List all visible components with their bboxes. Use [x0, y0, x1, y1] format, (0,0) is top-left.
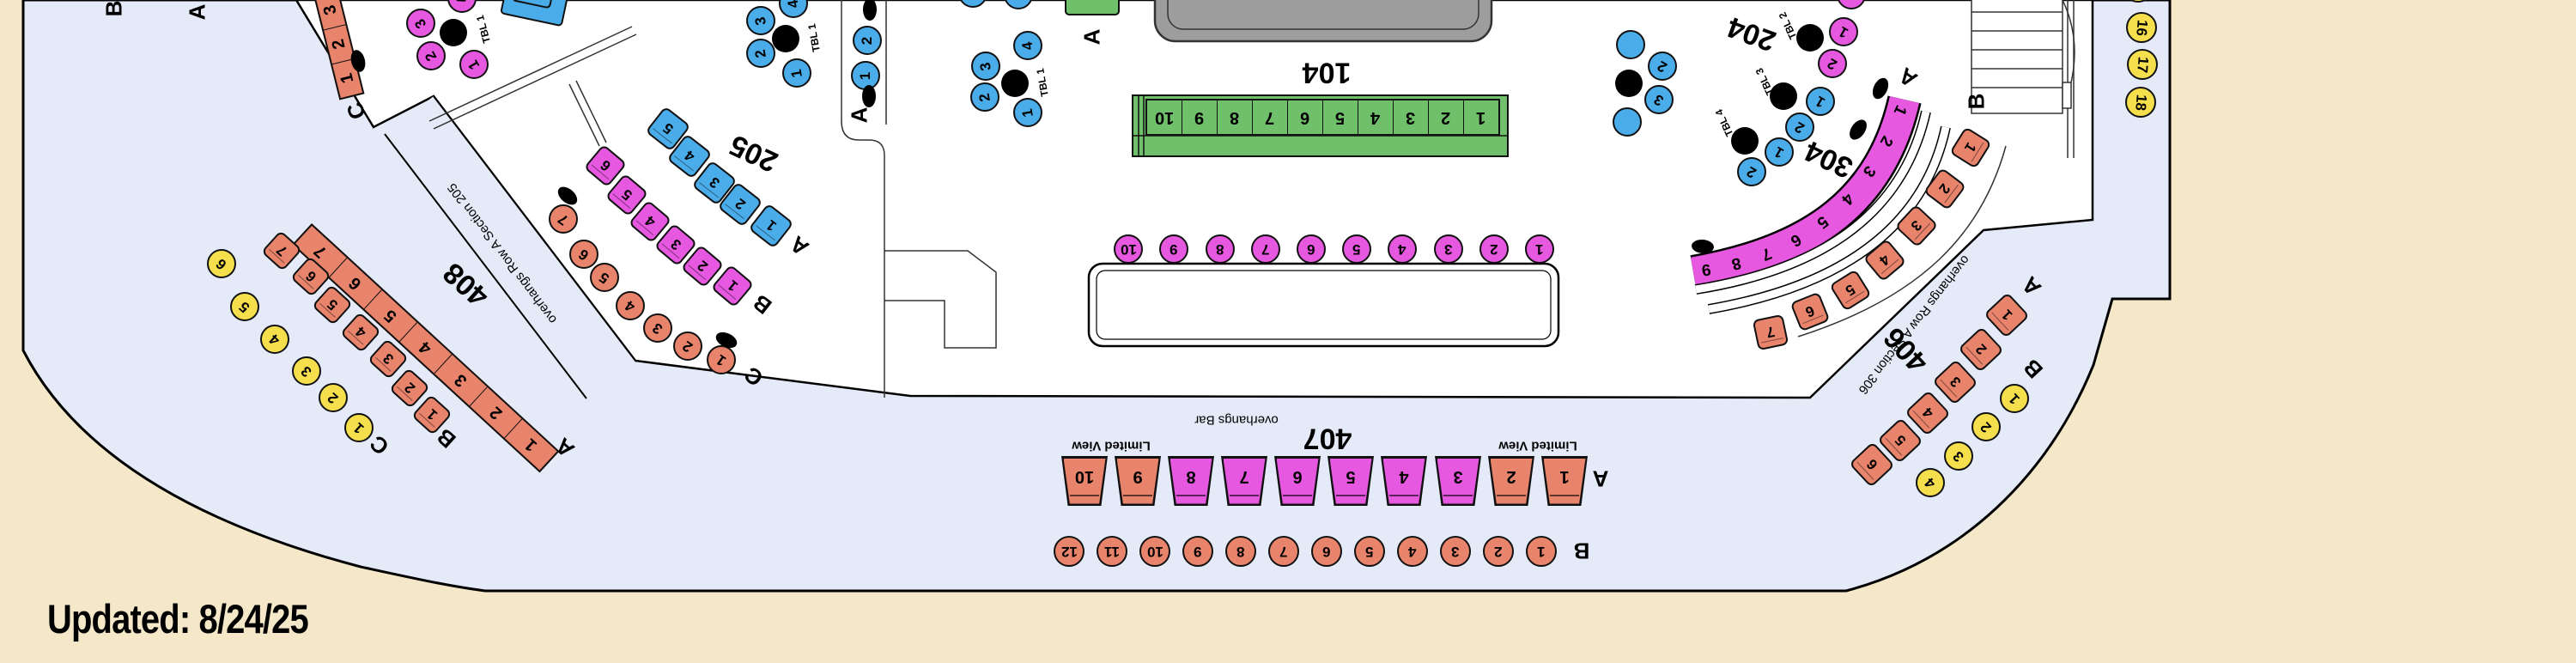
bench-seat-104-2[interactable]: 2: [1429, 100, 1464, 134]
seat-407-A-4[interactable]: 4: [1381, 456, 1427, 506]
seat-408-C-3[interactable]: 3: [292, 356, 321, 386]
seat-407-B-8[interactable]: 8: [1225, 536, 1256, 567]
bench-seat-104-7[interactable]: 7: [1253, 100, 1288, 134]
seat-t1m-2[interactable]: 2: [416, 41, 446, 70]
seat-astrip-2[interactable]: 2: [853, 26, 882, 55]
row-label-407-B: B: [1574, 538, 1590, 564]
stage: [1155, 0, 1492, 41]
seat-407-B-3[interactable]: 3: [1440, 536, 1471, 567]
bench-seat-104-8[interactable]: 8: [1218, 100, 1253, 134]
seat-407-B-5[interactable]: 5: [1354, 536, 1385, 567]
seat-407-B-4[interactable]: 4: [1397, 536, 1428, 567]
seat-t1b-4[interactable]: 4: [1013, 31, 1042, 60]
seat-bar-2[interactable]: 2: [1479, 234, 1509, 264]
seat-bar-4[interactable]: 4: [1388, 234, 1417, 264]
seat-408-C-1[interactable]: 1: [344, 413, 374, 442]
seating-chart: 7654321A1234567B123456C12345A123456B1234…: [0, 0, 2576, 663]
seat-205-C-6[interactable]: 6: [569, 240, 598, 269]
seat-t5-3[interactable]: 3: [1644, 85, 1674, 114]
section-label-407: 407: [1303, 422, 1352, 455]
seat-rail-18[interactable]: 18: [2125, 87, 2156, 118]
balcony-row-label-B: B: [101, 1, 128, 17]
seat-t4-2[interactable]: 2: [1737, 157, 1766, 186]
seat-bar-5[interactable]: 5: [1342, 234, 1371, 264]
row-label-407-A: A: [1593, 465, 1609, 492]
seat-407-B-11[interactable]: 11: [1097, 536, 1127, 567]
seat-406-B-1[interactable]: 1: [2000, 384, 2029, 413]
row-label-astrip: A: [847, 107, 873, 124]
seat-bar-10[interactable]: 10: [1114, 234, 1143, 264]
seat-t5-2[interactable]: 2: [1648, 52, 1677, 81]
seat-rail-17[interactable]: 17: [2127, 49, 2158, 80]
seat-t1a-1[interactable]: 1: [782, 58, 811, 88]
row-label-304-B: B: [1964, 94, 1990, 110]
seat-t4-1[interactable]: 1: [1765, 137, 1794, 167]
seat-406-B-3[interactable]: 3: [1944, 441, 1973, 471]
table-top-t4[interactable]: [1731, 127, 1759, 155]
bench-104[interactable]: 10987654321: [1145, 99, 1500, 136]
seat-407-B-10[interactable]: 10: [1139, 536, 1170, 567]
seat-407-A-8[interactable]: 8: [1168, 456, 1214, 506]
bench-seat-104-4[interactable]: 4: [1358, 100, 1394, 134]
seat-t1b-2[interactable]: 2: [970, 82, 999, 112]
bench-seat-104-3[interactable]: 3: [1394, 100, 1429, 134]
balcony-row-label-A: A: [185, 4, 211, 21]
seat-406-B-4[interactable]: 4: [1916, 468, 1945, 497]
seat-408-C-2[interactable]: 2: [319, 383, 348, 412]
seat-t3-1[interactable]: 1: [1806, 87, 1835, 116]
seat-205-C-3[interactable]: 3: [643, 313, 672, 343]
seat-rail-16[interactable]: 16: [2126, 12, 2157, 43]
seat-407-B-2[interactable]: 2: [1483, 536, 1514, 567]
table-top-t1m[interactable]: [440, 19, 467, 46]
seat-408-C-6[interactable]: 6: [207, 249, 236, 278]
seat-304-B-7[interactable]: 7: [1753, 314, 1789, 351]
seat-407-A-6[interactable]: 6: [1274, 456, 1321, 506]
seat-t1a-3[interactable]: 3: [746, 6, 775, 35]
seat-t1b-1[interactable]: 1: [1013, 98, 1042, 127]
seat-407-B-1[interactable]: 1: [1526, 536, 1557, 567]
limited-view-note-left: Limited View: [1072, 439, 1150, 453]
seat-407-A-9[interactable]: 9: [1115, 456, 1161, 506]
seat-407-B-7[interactable]: 7: [1268, 536, 1299, 567]
seat-205-C-7[interactable]: 7: [549, 204, 578, 234]
seat-408-C-5[interactable]: 5: [230, 292, 259, 321]
bench-seat-104-1[interactable]: 1: [1464, 100, 1498, 134]
limited-view-note-right: Limited View: [1498, 439, 1577, 453]
table-top-t2[interactable]: [1796, 24, 1824, 52]
bench-seat-104-9[interactable]: 9: [1182, 100, 1218, 134]
seat-406-B-2[interactable]: 2: [1971, 412, 2001, 441]
seat-205-C-2[interactable]: 2: [673, 331, 702, 361]
row-label-green-A: A: [1079, 29, 1106, 46]
seat-t1m-3[interactable]: 3: [406, 9, 435, 38]
seat-bar-9[interactable]: 9: [1159, 234, 1188, 264]
seat-t1b-3[interactable]: 3: [971, 52, 1000, 81]
table-top-t5[interactable]: [1615, 70, 1643, 97]
seat-407-A-1[interactable]: 1: [1541, 456, 1588, 506]
table-top-t1a[interactable]: [772, 25, 799, 52]
seat-407-B-12[interactable]: 12: [1054, 536, 1084, 567]
seat-bar-6[interactable]: 6: [1297, 234, 1326, 264]
seat-t3-2[interactable]: 2: [1785, 113, 1814, 142]
seat-407-A-2[interactable]: 2: [1488, 456, 1534, 506]
seat-t2-1[interactable]: 1: [1829, 17, 1858, 46]
bench-seat-104-10[interactable]: 10: [1147, 100, 1182, 134]
seat-bar-7[interactable]: 7: [1251, 234, 1280, 264]
seat-t2-2[interactable]: 2: [1818, 49, 1847, 78]
seat-t1m-1[interactable]: 1: [459, 50, 489, 79]
seat-407-A-5[interactable]: 5: [1327, 456, 1374, 506]
seat-bar-1[interactable]: 1: [1525, 234, 1554, 264]
seat-408-C-4[interactable]: 4: [260, 325, 289, 354]
section-label-104: 104: [1303, 56, 1352, 89]
seat-t1a-2[interactable]: 2: [746, 39, 775, 68]
seat-407-A-10[interactable]: 10: [1061, 456, 1108, 506]
seat-205-C-4[interactable]: 4: [616, 291, 645, 320]
accessible-marker-2: [862, 85, 876, 107]
seat-bar-3[interactable]: 3: [1434, 234, 1463, 264]
overhang-note-407: overhangs Bar: [1194, 413, 1279, 428]
seat-407-B-9[interactable]: 9: [1182, 536, 1213, 567]
seat-205-C-1[interactable]: 1: [707, 345, 736, 374]
green-chair[interactable]: [1065, 0, 1120, 15]
partial-seat-2[interactable]: [1613, 107, 1642, 137]
updated-date-label: Updated: 8/24/25: [47, 595, 308, 642]
table-top-t1b[interactable]: [1001, 70, 1029, 97]
bar-counter: [1089, 264, 1558, 346]
seat-bar-8[interactable]: 8: [1206, 234, 1235, 264]
bench-seat-104-5[interactable]: 5: [1323, 100, 1358, 134]
seat-407-A-7[interactable]: 7: [1221, 456, 1267, 506]
seat-407-A-3[interactable]: 3: [1435, 456, 1481, 506]
seat-407-B-6[interactable]: 6: [1311, 536, 1342, 567]
bench-seat-104-6[interactable]: 6: [1288, 100, 1323, 134]
partial-seat-1[interactable]: [1616, 30, 1645, 59]
seat-205-C-5[interactable]: 5: [590, 263, 619, 292]
